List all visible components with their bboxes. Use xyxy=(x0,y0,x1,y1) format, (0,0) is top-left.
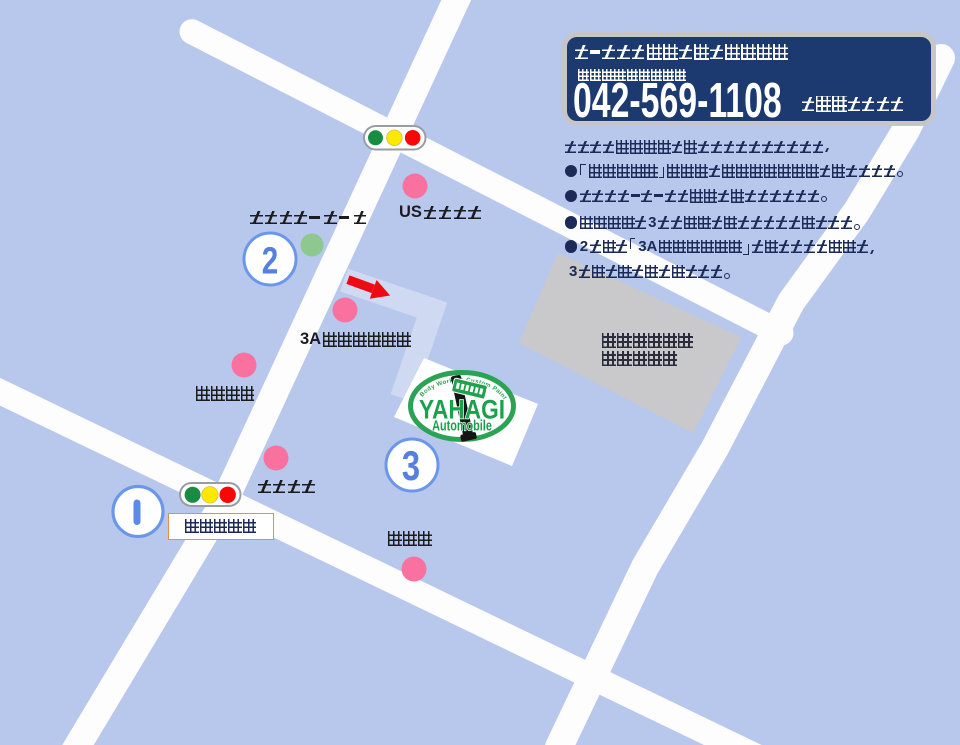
svg-text:Automobile: Automobile xyxy=(432,417,492,434)
svg-text:2: 2 xyxy=(262,240,278,282)
svg-text:3: 3 xyxy=(402,442,420,489)
